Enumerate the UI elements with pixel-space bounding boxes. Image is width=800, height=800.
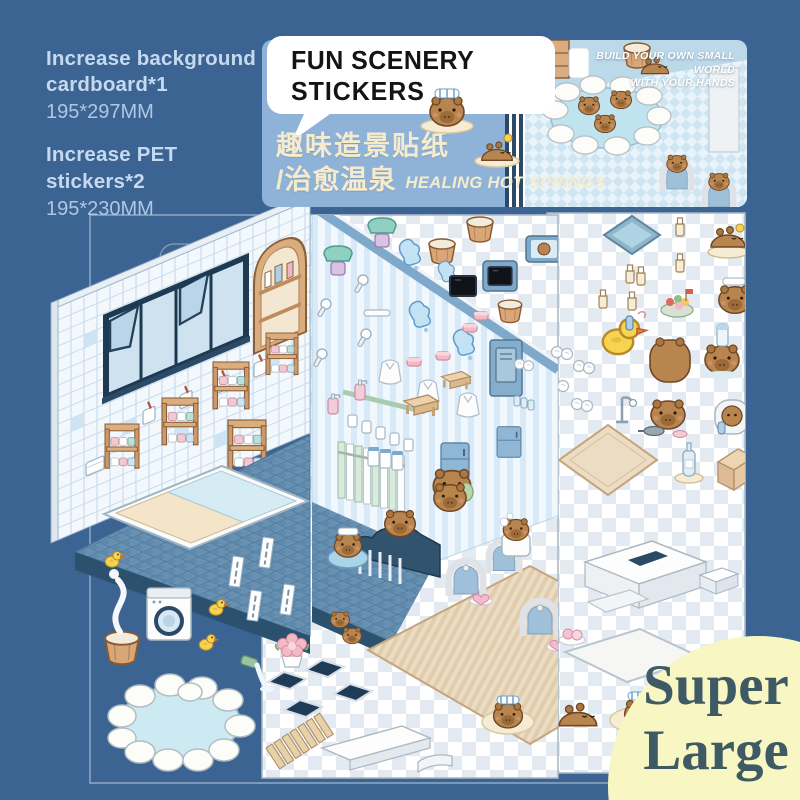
badge-line-1: Super	[610, 654, 800, 719]
heart-soap	[470, 594, 492, 605]
capybara-spring-icon-2	[472, 130, 522, 168]
soap-bar	[463, 324, 477, 332]
wall-tv	[526, 236, 562, 262]
milk-bottle	[628, 292, 636, 310]
subtitle-en: HEALING HOT SPRINGS	[406, 174, 606, 197]
capybara-face	[331, 612, 350, 628]
capybara-standing	[385, 511, 416, 537]
capybara-standing	[434, 484, 466, 512]
badge-line-2: Large	[610, 719, 800, 784]
milk-bottle	[626, 265, 634, 283]
scene-caption: BUILD YOUR OWN SMALL WORLD WITH YOUR HAN…	[575, 50, 735, 91]
caption-line-1: BUILD YOUR OWN SMALL WORLD	[575, 50, 735, 77]
milk-bottle	[599, 290, 607, 308]
tv-mirror	[483, 261, 517, 291]
subtitle-cn-line-2: /治愈温泉	[276, 158, 397, 197]
soap-bar	[436, 352, 450, 360]
super-large-badge: Super Large	[608, 636, 800, 800]
info-item-1-size: 195*297MM	[46, 99, 271, 125]
mini-fridge	[497, 427, 521, 458]
caption-line-2: WITH YOUR HANDS	[575, 77, 735, 91]
stone-hot-spring-pool	[108, 674, 255, 771]
capybara-brushing	[719, 278, 757, 313]
info-item-1-title: Increase background cardboard*1	[46, 46, 271, 98]
wooden-bucket-sticker	[498, 300, 521, 323]
capybara-shower-chair	[500, 513, 530, 556]
towel-bar	[364, 310, 390, 316]
bathrobe	[457, 393, 479, 417]
product-image: Increase background cardboard*1 195*297M…	[0, 0, 800, 800]
product-title-line-1: FUN SCENERY	[291, 45, 474, 76]
capybara-spring-icon	[418, 88, 476, 134]
washing-machine	[147, 588, 191, 640]
milk-bottle	[637, 267, 645, 285]
info-item-2-size: 195*230MM	[46, 196, 271, 222]
subtitle-row: /治愈温泉 HEALING HOT SPRINGS	[276, 158, 606, 197]
bathrobe	[379, 360, 401, 384]
milk-bottle	[676, 218, 684, 236]
info-item-2-title: Increase PET stickers*2	[46, 142, 271, 194]
capybara-face	[343, 628, 362, 644]
tv-screen	[450, 276, 476, 296]
product-title-line-2: STICKERS	[291, 76, 425, 107]
info-panel: Increase background cardboard*1 195*297M…	[46, 46, 271, 222]
shower-arch	[449, 561, 483, 596]
soap-bar	[407, 358, 421, 366]
capybara-hooded	[715, 400, 749, 434]
soap-bar	[474, 312, 488, 320]
wooden-bucket-sticker	[467, 217, 493, 242]
wooden-bucket-sticker	[429, 239, 455, 264]
capybara-back	[650, 338, 690, 382]
shower-arch	[523, 601, 557, 636]
milk-bottle	[676, 254, 684, 272]
rubber-duck	[199, 635, 219, 651]
steam	[115, 580, 123, 632]
badge-text: Super Large	[610, 654, 800, 784]
